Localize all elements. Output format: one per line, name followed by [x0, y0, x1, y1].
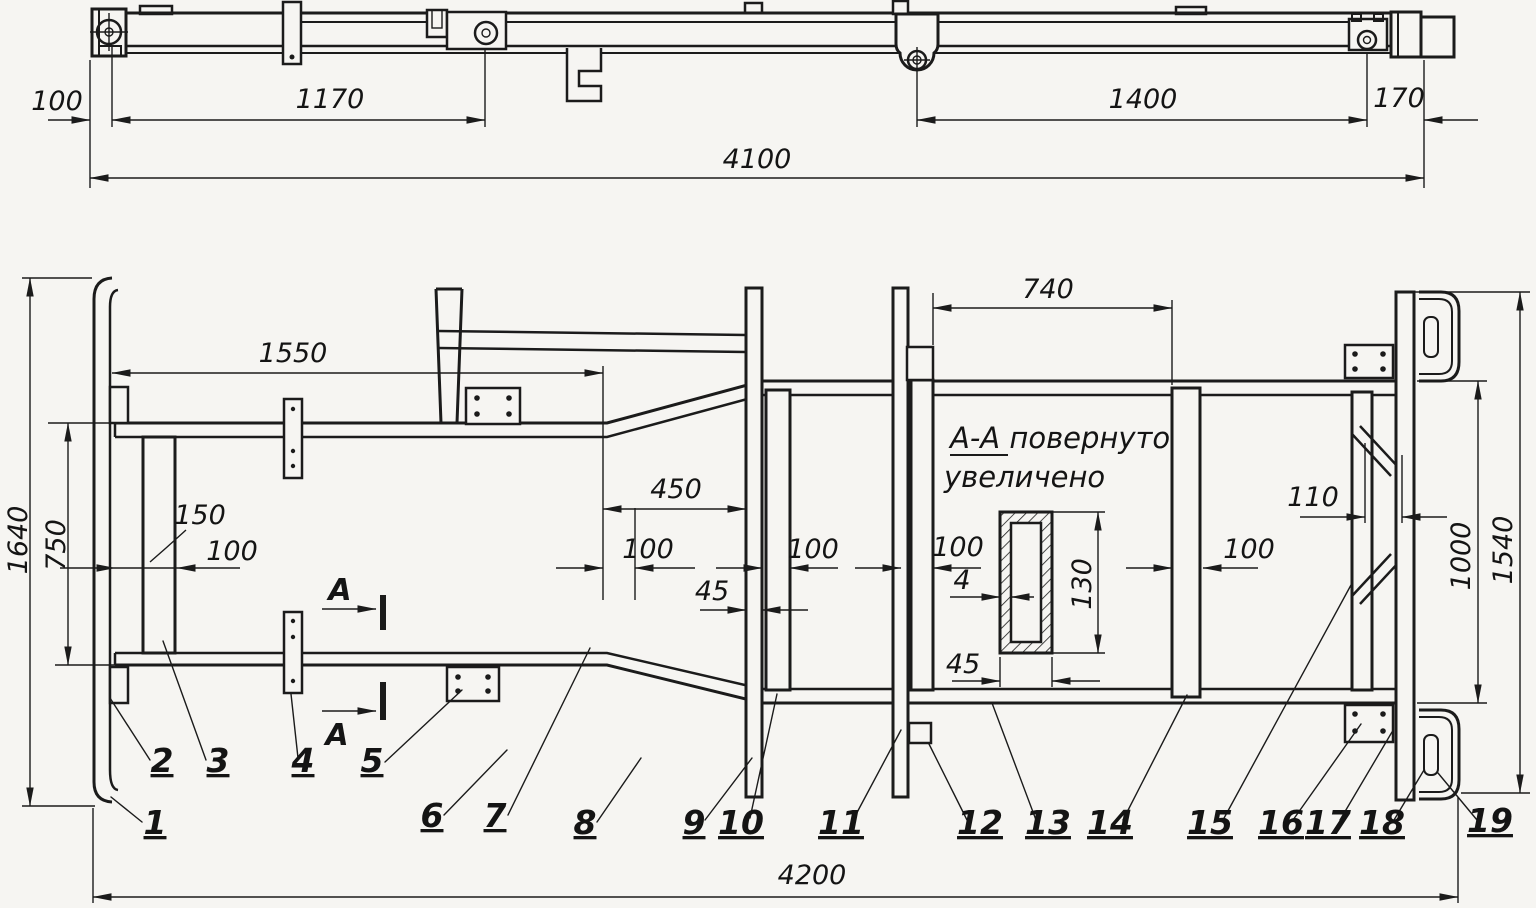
callout-7: 7 [484, 796, 507, 835]
cross-member-rear-1 [1172, 388, 1200, 697]
rear-shackle [1349, 14, 1387, 50]
dim-label: 100 [31, 86, 83, 117]
dim-label: 130 [1067, 558, 1098, 610]
small-bracket-bottom [909, 723, 931, 743]
callout-2: 2 [151, 741, 174, 780]
callout-1: 1 [144, 803, 167, 842]
section-note-line1: А-А повернуто [948, 421, 1170, 455]
callout-12: 12 [957, 803, 1003, 842]
dim-label: 100 [206, 536, 258, 567]
dim-label: 150 [174, 500, 226, 531]
dim-label: 740 [1022, 274, 1074, 305]
section-note-line2: увеличено [943, 460, 1105, 494]
drawing-canvas: 100 1170 1400 170 4100 [0, 0, 1536, 908]
platform-bar-2 [911, 380, 933, 690]
chassis-frame-drawing: 100 1170 1400 170 4100 [0, 0, 1536, 908]
side-view-dimensions: 100 1170 1400 170 4100 [31, 45, 1478, 188]
small-bracket-top [907, 347, 933, 380]
rear-bumper-top [1419, 292, 1459, 381]
cross-member-mid-1 [746, 288, 762, 797]
callout-6: 6 [421, 796, 444, 835]
tube-section-inner [1011, 523, 1041, 642]
hanging-plate-front [283, 2, 301, 64]
dim-label: 1640 [3, 506, 34, 575]
dim-label: 1550 [259, 338, 328, 369]
callout-11: 11 [818, 803, 864, 842]
side-view-frame: 100 1170 1400 170 4100 [31, 1, 1478, 188]
callout-9: 9 [683, 803, 706, 842]
section-cut-marks: А А [322, 573, 383, 753]
callout-14: 14 [1087, 803, 1133, 842]
dim-label: 1400 [1109, 84, 1178, 115]
bumper-stay-bottom [110, 667, 128, 703]
dim-label: 750 [41, 519, 72, 571]
callout-16: 16 [1258, 803, 1304, 842]
bumper-stay-top [110, 387, 128, 423]
front-spring-hanger [90, 9, 128, 56]
callout-18: 18 [1359, 803, 1405, 842]
callout-13: 13 [1025, 803, 1071, 842]
spring-pad-plates [284, 399, 302, 693]
rail-tab-rear [1176, 7, 1206, 14]
dim-label: 100 [932, 532, 984, 563]
callout-17: 17 [1305, 803, 1351, 842]
callout-19: 19 [1467, 801, 1513, 840]
callout-3: 3 [207, 741, 230, 780]
side-rail [115, 13, 1393, 53]
dim-label: 4 [953, 565, 970, 596]
dim-label: 1170 [296, 84, 365, 115]
dim-label: 100 [622, 534, 674, 565]
dim-label: 4200 [778, 860, 847, 891]
callout-5: 5 [361, 741, 384, 780]
rail-tab-front [140, 6, 172, 14]
rear-cross-beam [1396, 292, 1414, 800]
dim-label: 100 [787, 534, 839, 565]
section-mark-label: А [326, 573, 351, 608]
dim-label: 170 [1373, 83, 1425, 114]
callout-8: 8 [574, 803, 597, 842]
dim-label: 100 [1223, 534, 1275, 565]
dim-label: 110 [1287, 482, 1339, 513]
callout-10: 10 [718, 803, 764, 842]
dim-label: 450 [650, 474, 702, 505]
dim-label: 45 [695, 576, 729, 607]
front-spring-shackle-bracket [427, 10, 506, 49]
front-bumper [94, 278, 118, 802]
rear-bumper-bottom [1419, 710, 1459, 799]
under-rail-bracket [567, 48, 601, 101]
callout-15: 15 [1187, 803, 1233, 842]
dim-label: 1000 [1446, 522, 1477, 591]
part-callouts: 1 2 3 4 5 6 7 8 9 10 11 12 13 14 15 16 1… [110, 585, 1513, 842]
dim-label: 1540 [1488, 516, 1519, 585]
callout-4: 4 [291, 741, 315, 780]
section-mark-label: А [323, 718, 348, 753]
rear-end-brackets [1391, 12, 1454, 57]
dim-label: 45 [946, 649, 980, 680]
dim-label: 4100 [723, 144, 792, 175]
